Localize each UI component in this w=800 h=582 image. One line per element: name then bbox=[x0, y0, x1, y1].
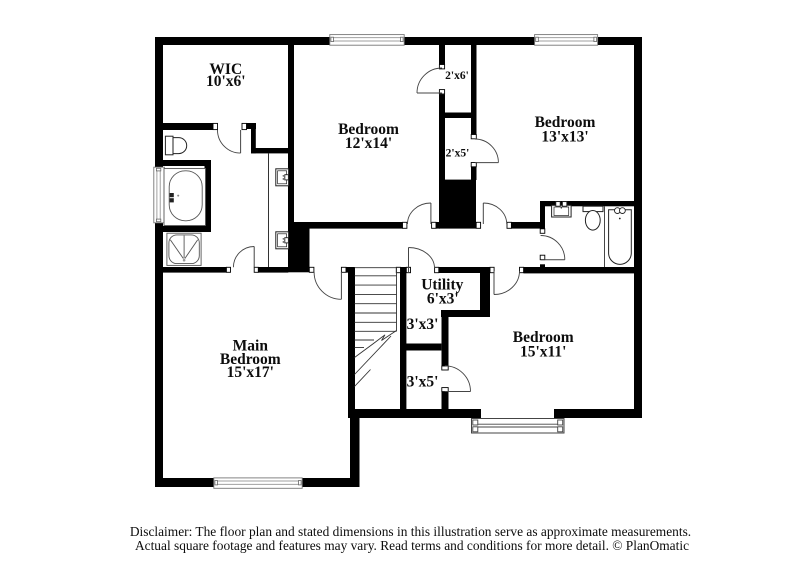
svg-text:Disclaimer: The floor plan and: Disclaimer: The floor plan and stated di… bbox=[130, 524, 691, 539]
svg-text:15'x11': 15'x11' bbox=[520, 344, 567, 361]
svg-text:3'x3': 3'x3' bbox=[407, 316, 439, 333]
svg-text:13'x13': 13'x13' bbox=[541, 128, 588, 145]
svg-text:10'x6': 10'x6' bbox=[206, 73, 246, 90]
svg-text:Actual square footage and feat: Actual square footage and features may v… bbox=[135, 538, 689, 553]
svg-text:15'x17': 15'x17' bbox=[227, 364, 274, 381]
svg-text:3'x5': 3'x5' bbox=[407, 373, 439, 390]
svg-text:2'x6': 2'x6' bbox=[445, 70, 469, 82]
svg-text:6'x3': 6'x3' bbox=[427, 290, 459, 307]
svg-text:2'x5': 2'x5' bbox=[446, 147, 470, 159]
svg-text:12'x14': 12'x14' bbox=[345, 135, 392, 152]
